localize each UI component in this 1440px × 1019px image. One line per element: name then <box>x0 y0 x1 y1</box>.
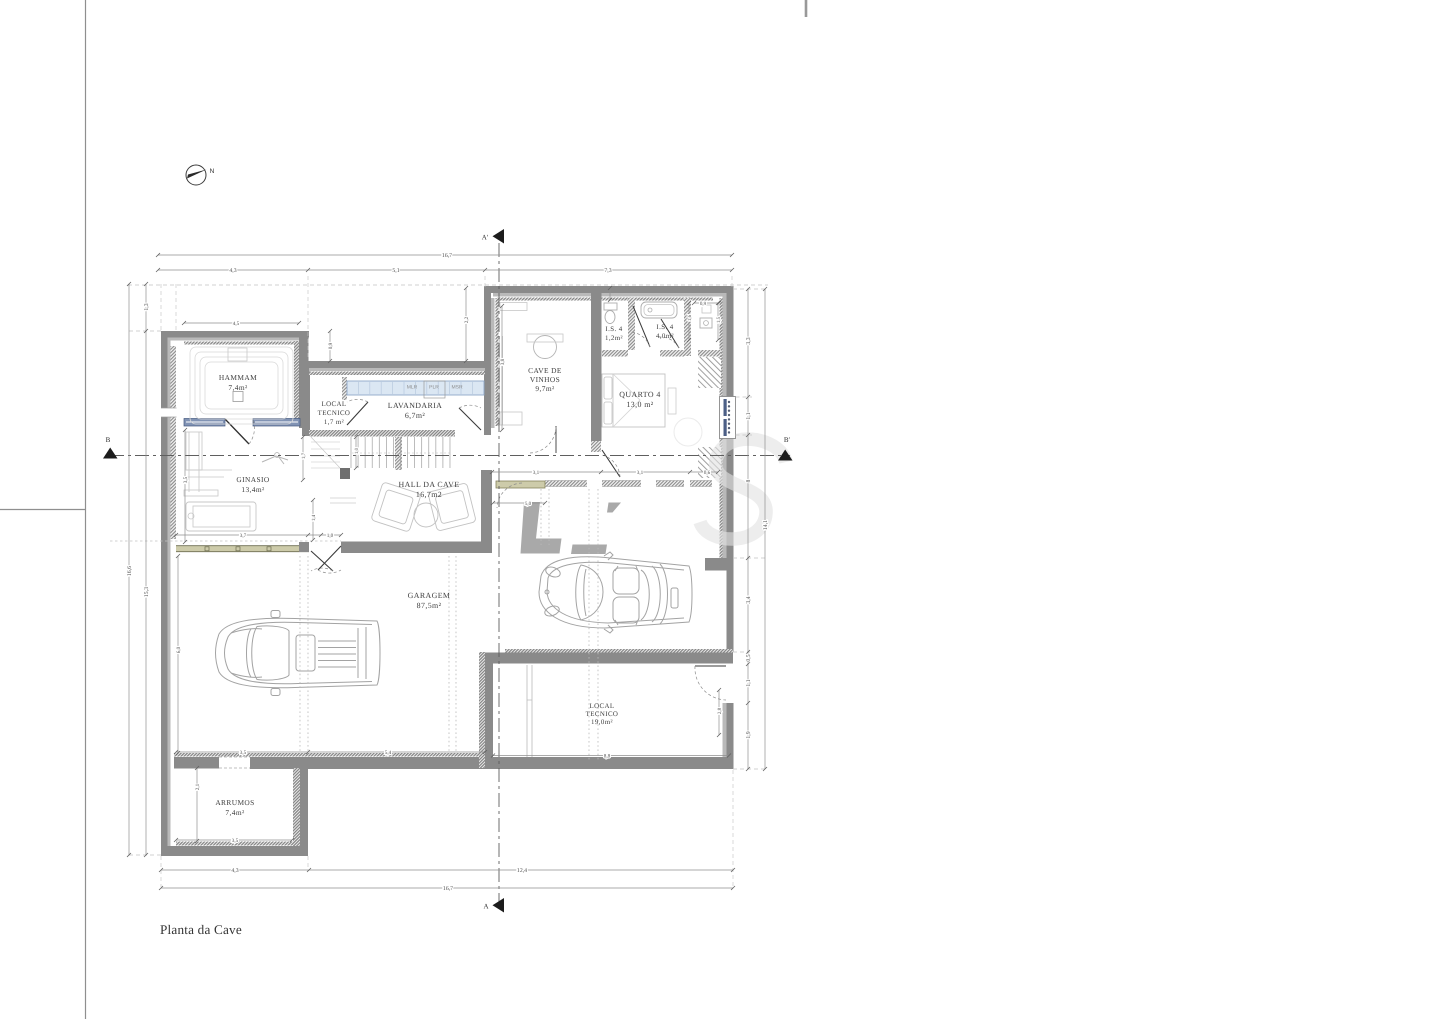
svg-text:2,1: 2,1 <box>195 783 201 790</box>
svg-text:TECNICO: TECNICO <box>318 410 351 417</box>
svg-text:I.S. 4: I.S. 4 <box>605 326 622 333</box>
svg-text:1,0: 1,0 <box>327 533 334 539</box>
svg-text:16,7m2: 16,7m2 <box>416 490 442 499</box>
svg-text:4,5: 4,5 <box>233 321 240 327</box>
svg-text:3,5: 3,5 <box>240 750 247 756</box>
svg-text:LOCAL: LOCAL <box>590 703 615 710</box>
svg-text:3,1: 3,1 <box>533 470 540 476</box>
svg-text:1,1: 1,1 <box>746 679 752 686</box>
svg-text:LOCAL: LOCAL <box>322 401 347 408</box>
svg-text:B′: B′ <box>784 436 791 444</box>
svg-text:MLR: MLR <box>407 385 418 391</box>
svg-text:Planta da Cave: Planta da Cave <box>160 922 242 937</box>
svg-text:0,9: 0,9 <box>700 301 707 307</box>
svg-text:13,0 m²: 13,0 m² <box>626 400 653 409</box>
svg-text:3,8: 3,8 <box>500 358 506 365</box>
svg-text:7,3: 7,3 <box>604 268 611 274</box>
svg-text:3,5: 3,5 <box>183 476 189 483</box>
svg-text:6,0: 6,0 <box>176 646 182 653</box>
svg-text:2,8: 2,8 <box>717 707 723 714</box>
svg-text:PLR: PLR <box>429 385 439 391</box>
svg-text:3,1: 3,1 <box>637 470 644 476</box>
svg-text:15,3: 15,3 <box>144 587 150 597</box>
svg-text:MSR: MSR <box>451 385 463 391</box>
svg-text:1,5: 1,5 <box>716 316 722 323</box>
svg-text:0,5: 0,5 <box>746 654 752 661</box>
svg-text:1,7: 1,7 <box>301 452 307 459</box>
svg-text:5,1: 5,1 <box>392 268 399 274</box>
svg-text:A: A <box>483 903 488 911</box>
svg-text:B: B <box>106 436 111 444</box>
svg-text:1,4: 1,4 <box>311 514 317 521</box>
svg-text:HAMMAM: HAMMAM <box>219 373 257 382</box>
svg-text:12,4: 12,4 <box>517 868 527 874</box>
svg-text:I.S. 4: I.S. 4 <box>656 324 673 331</box>
svg-text:4,0m²: 4,0m² <box>656 333 674 340</box>
svg-text:19,0m²: 19,0m² <box>591 719 613 726</box>
svg-text:VINHOS: VINHOS <box>530 375 560 384</box>
svg-text:1,6: 1,6 <box>687 314 693 321</box>
svg-text:3,5: 3,5 <box>232 838 239 844</box>
svg-text:1,3: 1,3 <box>144 303 150 310</box>
svg-text:7,4m²: 7,4m² <box>225 808 245 817</box>
svg-text:2,2: 2,2 <box>464 316 470 323</box>
svg-text:1,7 m²: 1,7 m² <box>324 419 344 426</box>
svg-text:4,3: 4,3 <box>229 268 236 274</box>
svg-text:1,9: 1,9 <box>746 731 752 738</box>
svg-text:1,1: 1,1 <box>746 412 752 419</box>
svg-text:LAVANDARIA: LAVANDARIA <box>388 401 443 410</box>
svg-text:16,6: 16,6 <box>127 566 133 576</box>
svg-text:HALL DA CAVE: HALL DA CAVE <box>399 480 460 489</box>
svg-text:ARRUMOS: ARRUMOS <box>215 798 254 807</box>
svg-text:5,4: 5,4 <box>385 750 392 756</box>
svg-text:3,3: 3,3 <box>746 337 752 344</box>
svg-text:N: N <box>210 168 215 175</box>
svg-text:0,9: 0,9 <box>328 342 334 349</box>
svg-text:13,4m²: 13,4m² <box>241 485 265 494</box>
svg-text:QUARTO 4: QUARTO 4 <box>619 390 660 399</box>
svg-text:7,4m²: 7,4m² <box>228 383 248 392</box>
svg-text:6,7m²: 6,7m² <box>405 411 426 420</box>
svg-text:16,7: 16,7 <box>443 886 453 892</box>
svg-text:CAVE DE: CAVE DE <box>528 366 562 375</box>
svg-text:A′: A′ <box>482 234 489 242</box>
svg-text:3,7: 3,7 <box>240 533 247 539</box>
svg-text:4,3: 4,3 <box>231 868 238 874</box>
svg-text:1,2m²: 1,2m² <box>605 335 623 342</box>
svg-text:GINASIO: GINASIO <box>236 475 269 484</box>
svg-text:14,1: 14,1 <box>763 520 769 530</box>
svg-text:8,8: 8,8 <box>604 753 611 759</box>
svg-text:0,6: 0,6 <box>704 470 711 476</box>
svg-text:16,7: 16,7 <box>442 253 452 259</box>
svg-text:3,4: 3,4 <box>746 596 752 603</box>
svg-text:1,0: 1,0 <box>354 447 360 454</box>
svg-text:8: 8 <box>746 479 752 482</box>
svg-text:5,0: 5,0 <box>525 501 532 507</box>
svg-text:9,7m²: 9,7m² <box>535 384 555 393</box>
svg-text:87,5m²: 87,5m² <box>417 601 442 610</box>
svg-text:GARAGEM: GARAGEM <box>408 591 451 600</box>
svg-text:TECNICO: TECNICO <box>586 711 619 718</box>
